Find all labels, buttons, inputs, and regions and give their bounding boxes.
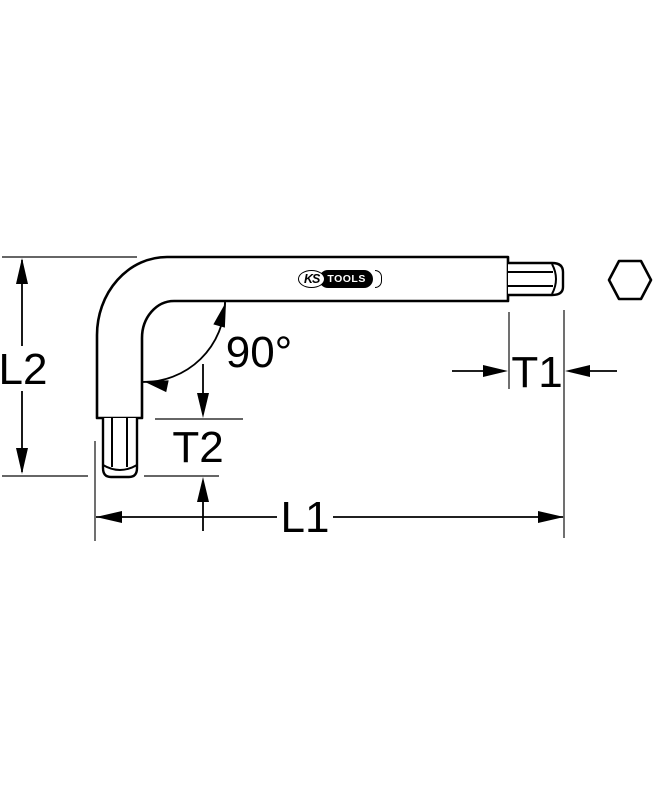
angle-arc	[143, 302, 225, 382]
t1-arrow-left-icon	[565, 365, 590, 377]
technical-drawing-canvas: L2 L1 T1 T2 90° KS TOOLS	[0, 0, 654, 800]
angle-arrow-left-icon	[142, 375, 169, 392]
hex-cross-section	[609, 261, 651, 299]
t1-arrow-right-icon	[483, 365, 508, 377]
hex-key-dimension-drawing: L2 L1 T1 T2 90°	[0, 0, 654, 800]
l2-arrow-down-icon	[16, 448, 28, 474]
ks-tools-logo-tools-text: TOOLS	[319, 270, 372, 288]
t1-label: T1	[511, 348, 562, 397]
l1-label: L1	[281, 493, 330, 542]
ks-tools-logo-paren-shape	[375, 270, 382, 288]
t2-arrow-down-icon	[197, 393, 209, 418]
l2-arrow-up-icon	[16, 258, 28, 284]
l2-label: L2	[0, 345, 47, 394]
angle-label: 90°	[226, 328, 293, 377]
t2-arrow-up-icon	[197, 477, 209, 502]
t2-label: T2	[172, 423, 223, 472]
angle-arrow-up-icon	[213, 300, 231, 327]
ks-tools-logo: KS TOOLS	[298, 270, 382, 288]
l1-arrow-right-icon	[538, 511, 564, 523]
l1-arrow-left-icon	[96, 511, 122, 523]
